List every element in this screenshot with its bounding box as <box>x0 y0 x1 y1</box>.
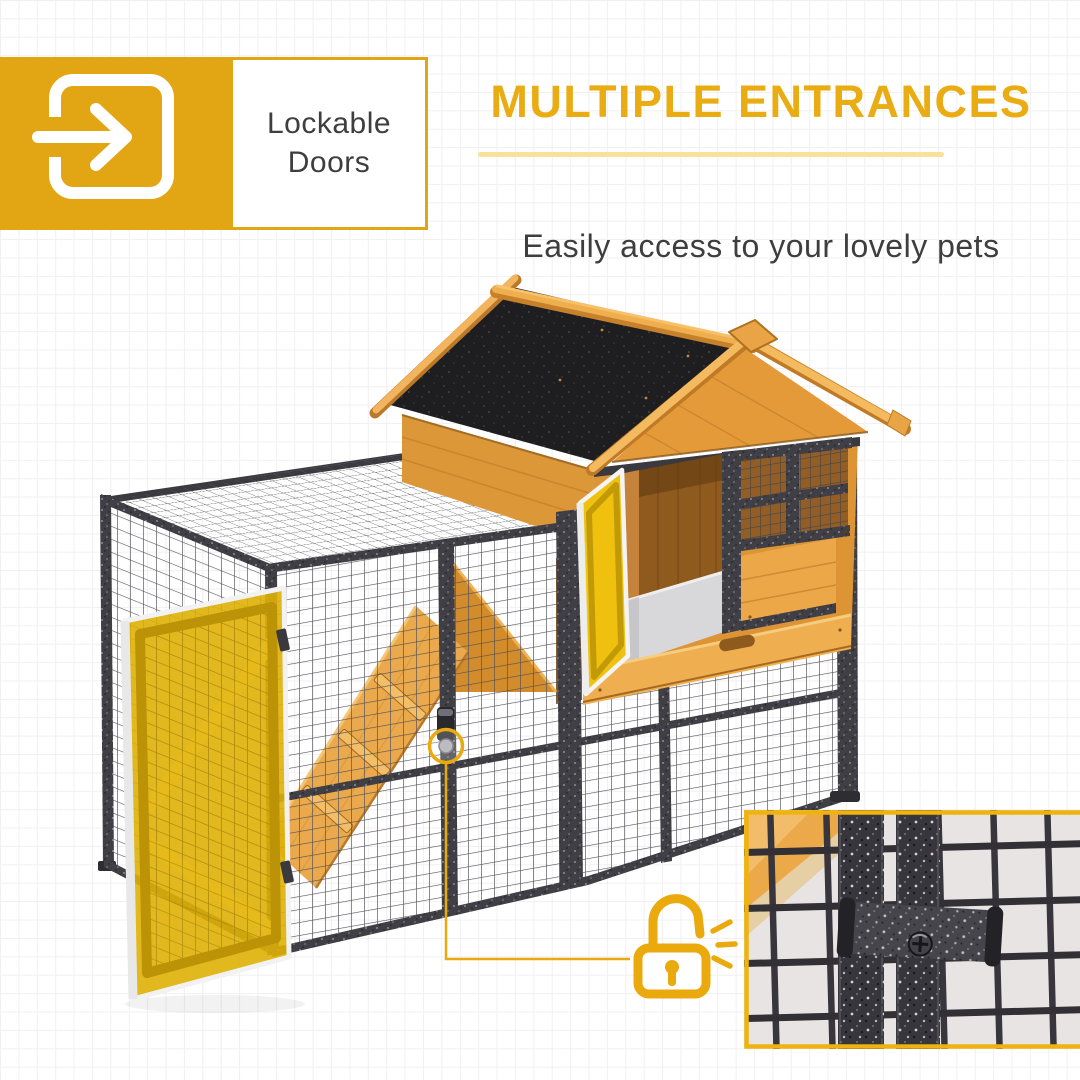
latch-closeup-inset <box>740 791 1080 1056</box>
feature-badge <box>0 57 230 230</box>
house-door-highlight <box>580 470 628 694</box>
page-subtitle: Easily access to your lovely pets <box>450 204 1072 265</box>
door-enter-icon <box>0 57 230 230</box>
mesh-window <box>734 437 852 551</box>
badge-label-line2: Doors <box>288 144 371 182</box>
badge-label-line1: Lockable <box>267 105 391 143</box>
house-doorway <box>620 454 724 666</box>
product-infographic: Lockable Doors MULTIPLE ENTRANCES Easily… <box>0 0 1080 1080</box>
feature-badge-label: Lockable Doors <box>230 57 428 230</box>
title-underline <box>478 152 944 157</box>
open-padlock-icon <box>638 899 735 994</box>
page-title: MULTIPLE ENTRANCES <box>450 76 1072 128</box>
run-door-highlight <box>125 588 305 1013</box>
click-dashes-icon <box>713 922 735 966</box>
headline-block: MULTIPLE ENTRANCES Easily access to your… <box>450 76 1072 265</box>
